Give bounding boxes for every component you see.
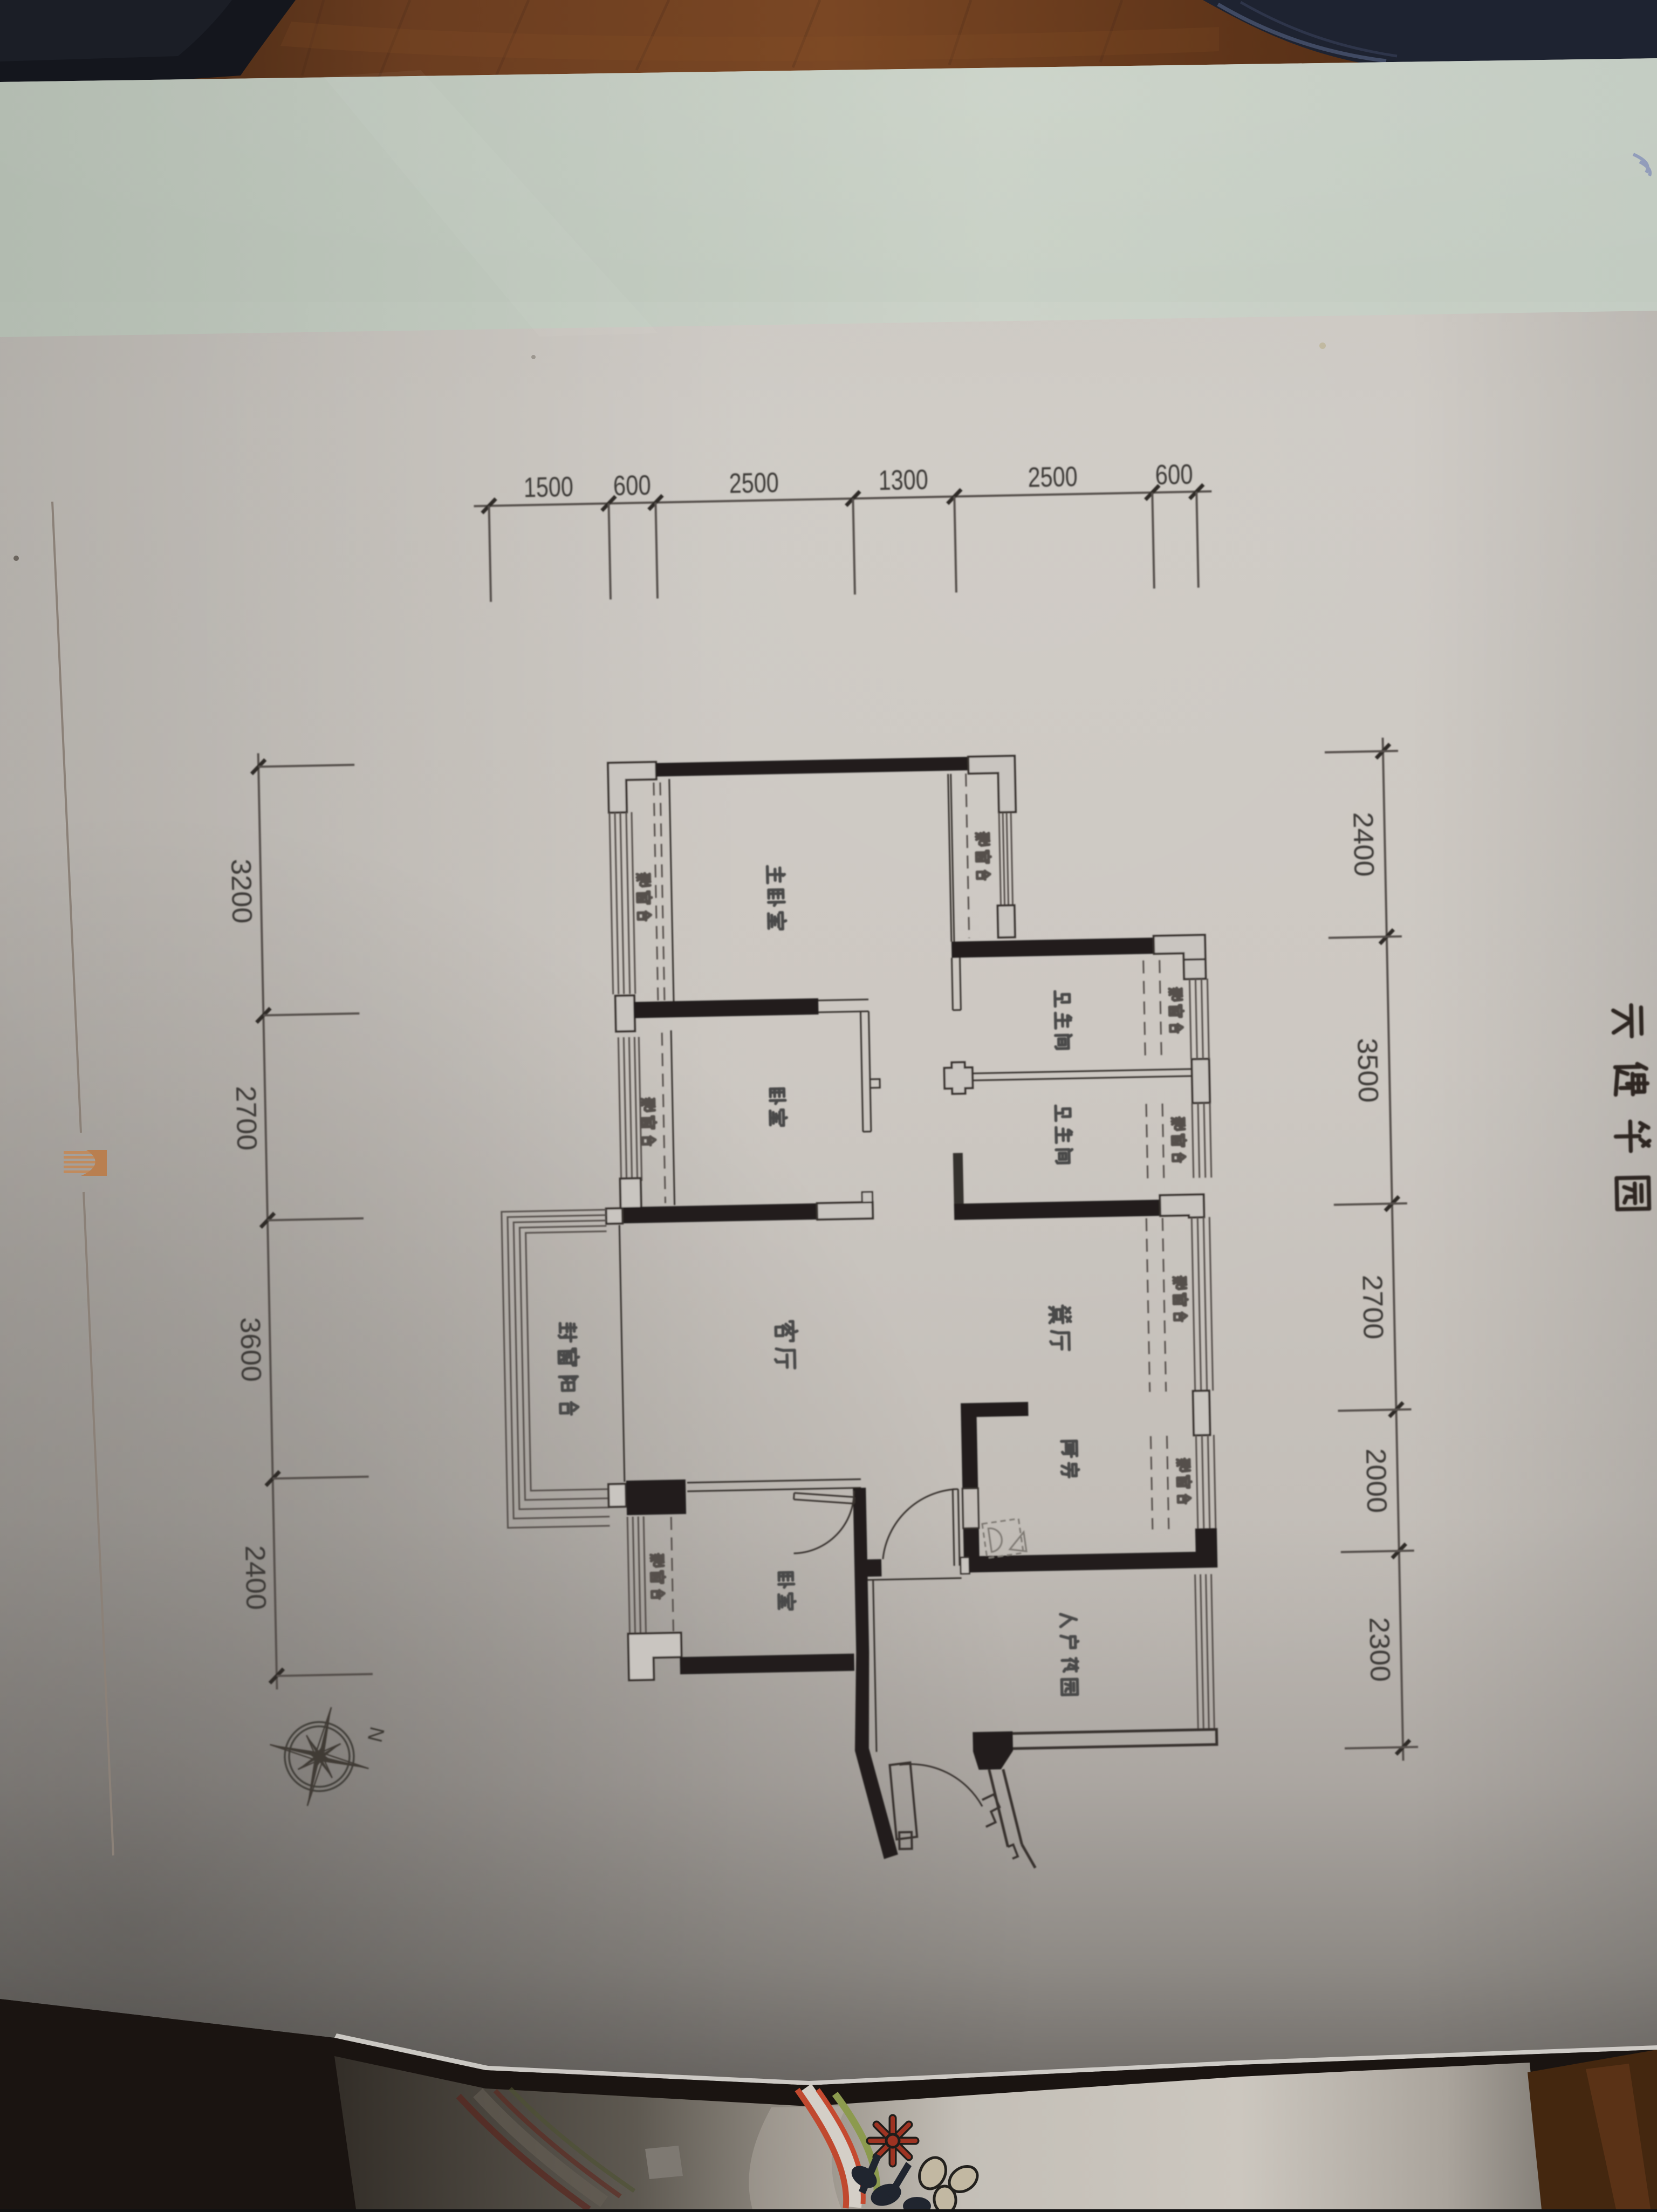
svg-text:2500: 2500 — [1028, 461, 1078, 494]
svg-text:600: 600 — [1155, 459, 1193, 491]
svg-text:3600: 3600 — [234, 1317, 266, 1382]
svg-text:2700: 2700 — [1356, 1275, 1388, 1340]
svg-text:3200: 3200 — [225, 859, 257, 924]
svg-text:2400: 2400 — [239, 1545, 271, 1610]
svg-text:1300: 1300 — [878, 464, 928, 497]
svg-text:2300: 2300 — [1363, 1617, 1395, 1682]
svg-text:1500: 1500 — [523, 471, 573, 504]
svg-text:2700: 2700 — [230, 1086, 262, 1151]
svg-text:600: 600 — [613, 470, 651, 502]
svg-text:2500: 2500 — [729, 467, 779, 499]
svg-text:2400: 2400 — [1347, 812, 1379, 877]
svg-text:3500: 3500 — [1351, 1038, 1384, 1103]
svg-text:2000: 2000 — [1360, 1448, 1392, 1514]
